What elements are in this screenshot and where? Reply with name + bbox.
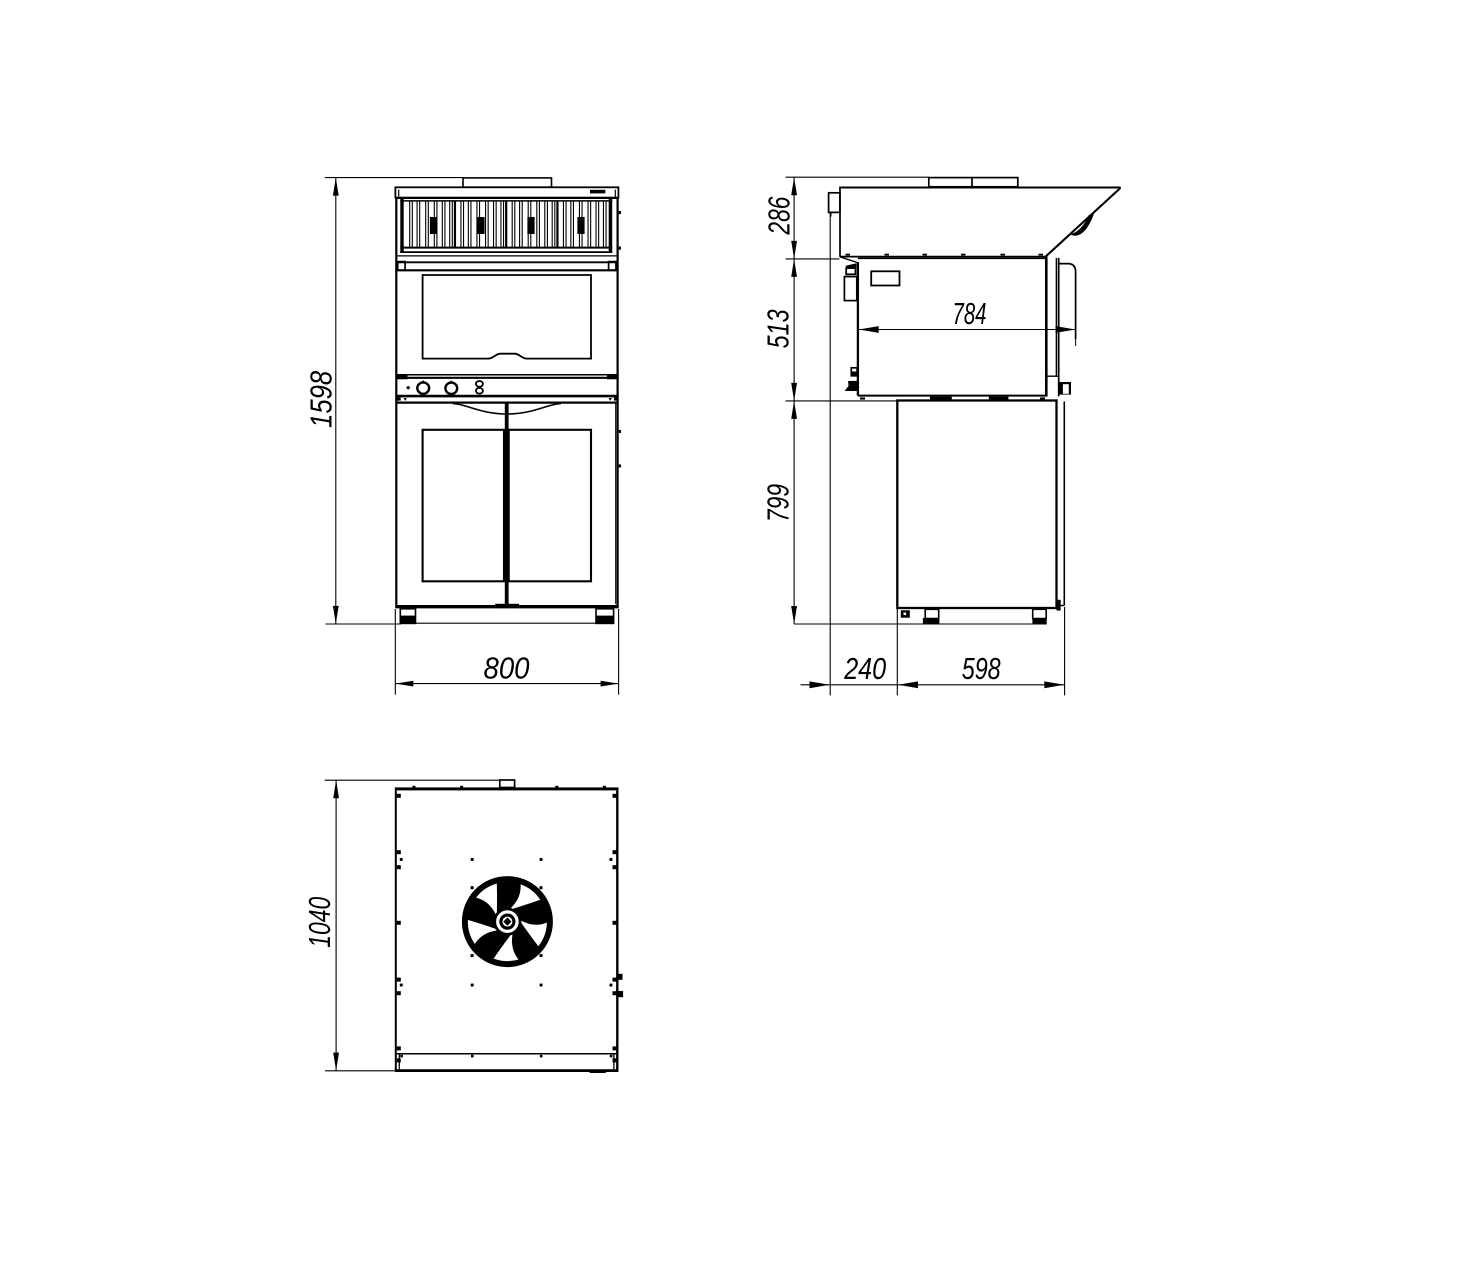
svg-text:513: 513 (761, 309, 796, 348)
svg-text:784: 784 (953, 296, 987, 331)
svg-text:799: 799 (761, 484, 796, 522)
svg-text:800: 800 (484, 651, 530, 686)
svg-text:598: 598 (962, 651, 1002, 686)
svg-text:240: 240 (843, 651, 886, 686)
svg-text:286: 286 (762, 196, 797, 235)
svg-text:1040: 1040 (302, 897, 337, 948)
svg-text:1598: 1598 (304, 370, 339, 428)
